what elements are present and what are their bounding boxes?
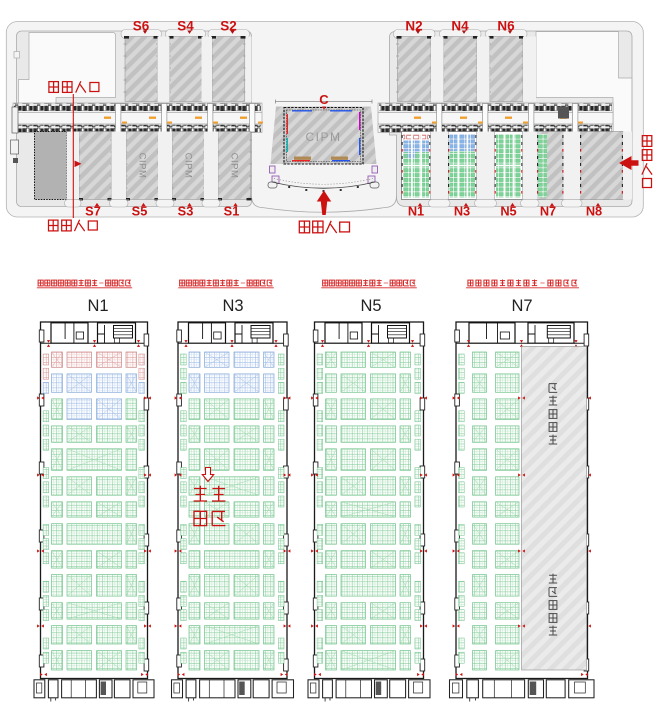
svg-text:S6: S6 [133, 19, 150, 34]
svg-text:CIPM: CIPM [137, 153, 148, 179]
svg-text:C: C [319, 92, 329, 107]
svg-text:S3: S3 [178, 203, 194, 218]
svg-text:N8: N8 [586, 203, 602, 218]
svg-text:N7: N7 [511, 297, 532, 315]
svg-text:S1: S1 [224, 203, 240, 218]
svg-text:CIPM: CIPM [229, 153, 240, 179]
svg-text:S4: S4 [177, 19, 194, 34]
svg-text:CIPM: CIPM [306, 130, 342, 144]
svg-text:S7: S7 [85, 203, 101, 218]
svg-text:N1: N1 [408, 203, 424, 218]
svg-text:S5: S5 [132, 203, 148, 218]
svg-text:N4: N4 [451, 19, 469, 34]
svg-text:N2: N2 [405, 19, 422, 34]
svg-text:N6: N6 [497, 19, 515, 34]
svg-text:S2: S2 [220, 19, 237, 34]
svg-text:N7: N7 [540, 203, 556, 218]
svg-text:N3: N3 [222, 297, 243, 315]
svg-text:CIPM: CIPM [183, 153, 194, 179]
svg-text:N5: N5 [500, 203, 516, 218]
svg-text:N1: N1 [87, 297, 108, 315]
svg-text:N5: N5 [360, 297, 381, 315]
svg-text:N3: N3 [454, 203, 470, 218]
